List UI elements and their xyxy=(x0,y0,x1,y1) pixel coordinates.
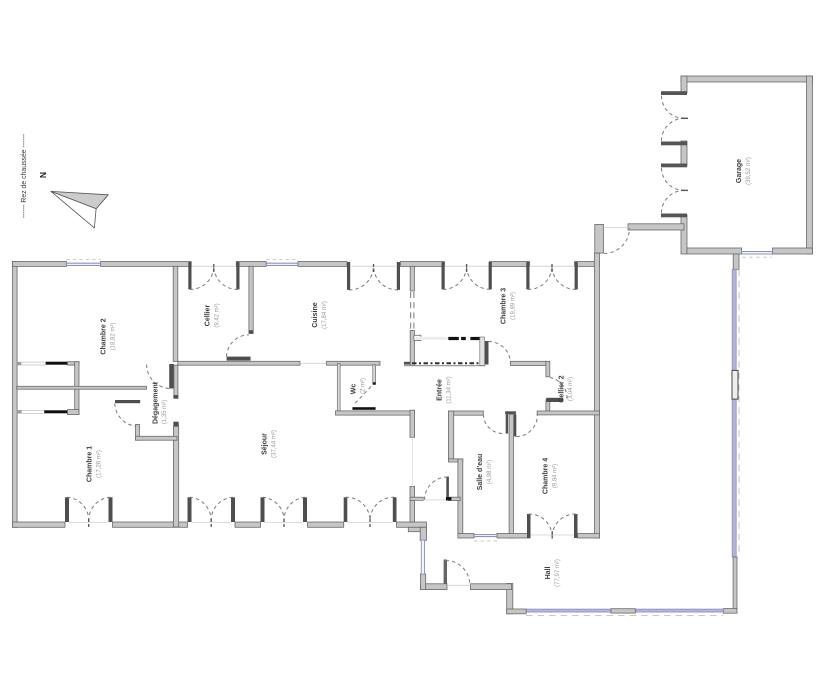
svg-text:(17,84 m²): (17,84 m²) xyxy=(322,301,328,329)
svg-text:(4,98 m²): (4,98 m²) xyxy=(487,460,493,484)
svg-text:Séjour: Séjour xyxy=(262,433,269,455)
svg-text:Chambre 1: Chambre 1 xyxy=(87,446,94,482)
svg-text:Garage: Garage xyxy=(736,159,743,183)
svg-text:(39,52 m²): (39,52 m²) xyxy=(746,157,752,185)
svg-text:Cuisine: Cuisine xyxy=(312,302,319,327)
svg-text:------ Rez de chaussée ------: ------ Rez de chaussée ------ xyxy=(21,134,28,219)
svg-text:(18,82 m²): (18,82 m²) xyxy=(110,323,116,351)
svg-text:(9,84 m²): (9,84 m²) xyxy=(552,464,558,488)
svg-text:(11,34 m²): (11,34 m²) xyxy=(446,376,452,403)
svg-text:(19,89 m²): (19,89 m²) xyxy=(510,292,516,320)
svg-text:(1,35 m²): (1,35 m²) xyxy=(162,400,168,424)
svg-text:Wc: Wc xyxy=(351,384,358,395)
svg-text:Chambre 2: Chambre 2 xyxy=(101,318,108,354)
svg-text:Chambre 4: Chambre 4 xyxy=(543,458,550,494)
svg-text:(77,97 m²): (77,97 m²) xyxy=(555,559,561,587)
svg-text:(17,26 m²): (17,26 m²) xyxy=(96,450,102,478)
svg-text:Salle d’eau: Salle d’eau xyxy=(477,454,484,491)
svg-text:Cellier: Cellier xyxy=(205,305,212,327)
svg-text:N: N xyxy=(38,172,48,178)
svg-text:Cellier 2: Cellier 2 xyxy=(559,375,566,402)
svg-text:Dégagement: Dégagement xyxy=(153,381,160,424)
svg-text:Chambre 3: Chambre 3 xyxy=(501,288,508,324)
svg-text:Entrée: Entrée xyxy=(437,379,444,401)
svg-text:(2 m²): (2 m²) xyxy=(360,378,366,394)
svg-text:(3,04 m²): (3,04 m²) xyxy=(568,377,574,401)
svg-text:Hall: Hall xyxy=(545,567,552,580)
svg-text:(37,44 m²): (37,44 m²) xyxy=(271,430,277,458)
svg-text:(9,42 m²): (9,42 m²) xyxy=(214,303,220,327)
